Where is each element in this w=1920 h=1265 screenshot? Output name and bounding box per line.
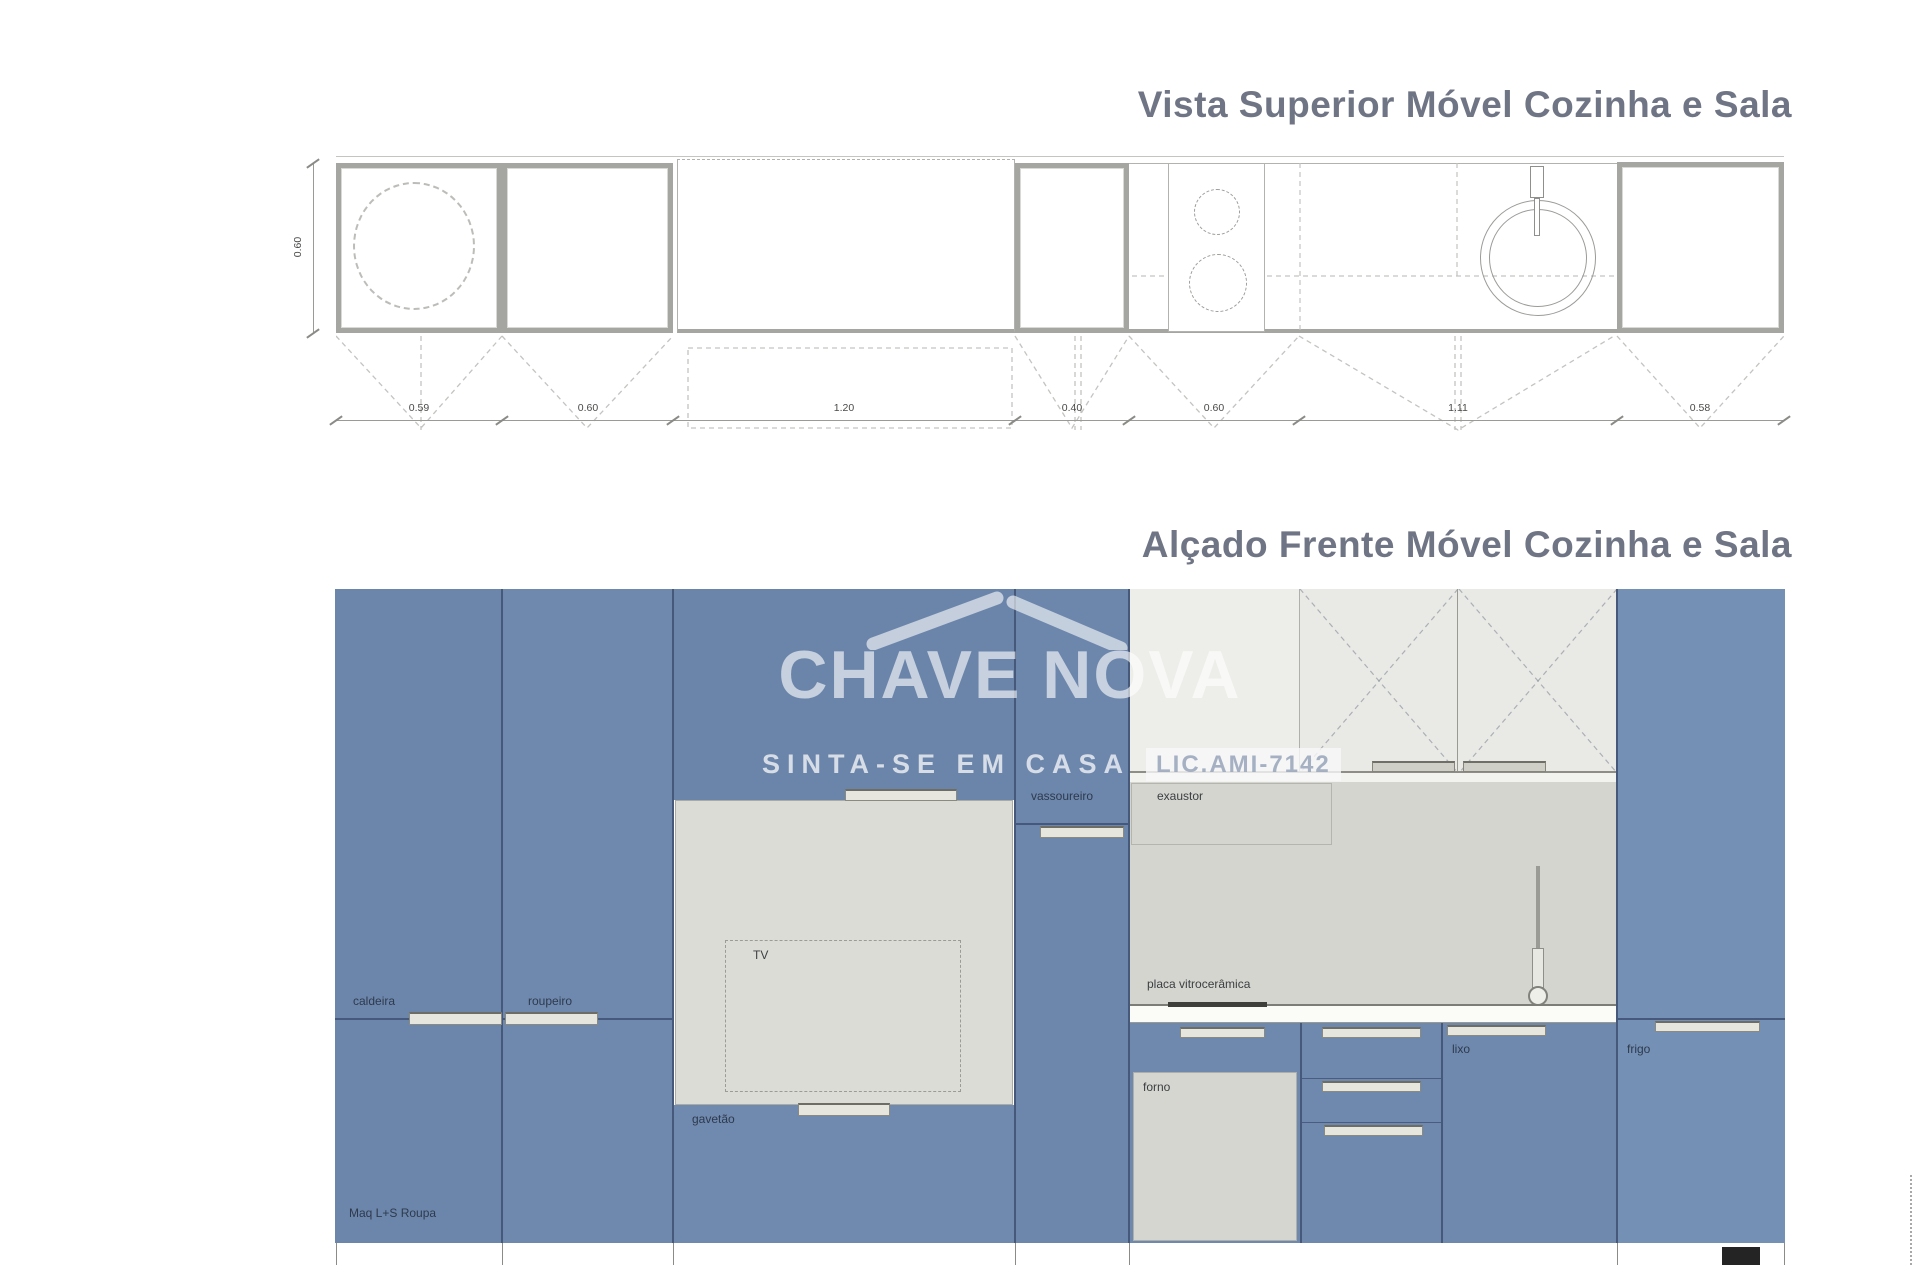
plinth-stub bbox=[1617, 1243, 1618, 1265]
caldeira-handle bbox=[409, 1012, 502, 1025]
plinth-stub bbox=[502, 1243, 503, 1265]
elevation-title: Alçado Frente Móvel Cozinha e Sala bbox=[992, 524, 1792, 566]
dim-label-6: 1.11 bbox=[1428, 402, 1488, 414]
drawer-handle-1 bbox=[1322, 1027, 1421, 1038]
vassoureiro-divider bbox=[1015, 823, 1129, 825]
label-gavetao: gavetão bbox=[692, 1112, 735, 1126]
plinth-stub bbox=[673, 1243, 674, 1265]
niche-bottom-handle bbox=[798, 1103, 890, 1116]
drawer-handle-3 bbox=[1324, 1125, 1423, 1136]
plan-depth-dim-line bbox=[313, 163, 314, 333]
plan-box-vassoureiro bbox=[1015, 163, 1129, 333]
tv-dashed-outline bbox=[725, 940, 961, 1092]
panel-divider-5 bbox=[1616, 589, 1618, 1243]
drawing-canvas: Vista Superior Móvel Cozinha e Sala 0.60 bbox=[0, 0, 1920, 1265]
plinth-stub bbox=[1015, 1243, 1016, 1265]
cooktop-strip bbox=[1168, 1002, 1267, 1007]
label-vassoureiro: vassoureiro bbox=[1031, 789, 1093, 803]
frigo-handle bbox=[1655, 1021, 1760, 1032]
upper-door-left-handle bbox=[1372, 761, 1455, 772]
label-frigo: frigo bbox=[1627, 1042, 1650, 1056]
plan-title: Vista Superior Móvel Cozinha e Sala bbox=[992, 84, 1792, 126]
niche-top-handle bbox=[845, 789, 957, 801]
plinth-stub bbox=[336, 1243, 337, 1265]
panel-divider-1 bbox=[501, 589, 503, 1243]
panel-divider-2 bbox=[672, 589, 674, 1243]
label-tv: TV bbox=[753, 948, 768, 962]
plan-hob-burner-small bbox=[1194, 189, 1240, 235]
lixo-door-handle bbox=[1447, 1025, 1546, 1036]
upper-divider-mid bbox=[1457, 589, 1458, 773]
plan-faucet-stem bbox=[1534, 198, 1540, 236]
vassoureiro-handle bbox=[1040, 826, 1124, 838]
plan-box-tv-unit bbox=[677, 159, 1015, 333]
label-maq-roupa: Maq L+S Roupa bbox=[349, 1206, 436, 1220]
base-divider-1 bbox=[1300, 1023, 1302, 1243]
faucet-body bbox=[1532, 948, 1544, 988]
label-placa: placa vitrocerâmica bbox=[1147, 977, 1250, 991]
drawer-divider-1 bbox=[1302, 1078, 1441, 1079]
watermark-license-badge: LIC.AMI-7142 bbox=[1146, 748, 1341, 781]
oven-front bbox=[1133, 1072, 1297, 1241]
plan-box-roupeiro bbox=[502, 163, 673, 333]
plan-dim-line bbox=[336, 420, 1784, 421]
cabinet-caldeira bbox=[335, 589, 502, 1243]
cabinet-frigo bbox=[1617, 589, 1785, 1243]
label-caldeira: caldeira bbox=[353, 994, 395, 1008]
plan-hob-burner-large bbox=[1189, 254, 1247, 312]
plan-box-caldeira bbox=[336, 163, 502, 333]
plan-faucet-head bbox=[1530, 166, 1544, 198]
oven-top-drawer-handle bbox=[1180, 1027, 1265, 1038]
drawer-divider-2 bbox=[1302, 1122, 1441, 1123]
plan-depth-label: 0.60 bbox=[292, 217, 304, 277]
plan-box-right-cabinet bbox=[1617, 162, 1784, 333]
watermark-row: SINTA-SE EM CASA LIC.AMI-7142 bbox=[762, 748, 1341, 781]
label-lixo: lixo bbox=[1452, 1042, 1470, 1056]
plan-wall-line bbox=[336, 156, 1784, 157]
dim-label-1: 0.59 bbox=[389, 402, 449, 414]
upper-door-x-marks bbox=[1300, 589, 1617, 773]
dim-label-3: 1.20 bbox=[814, 402, 874, 414]
label-roupeiro: roupeiro bbox=[528, 994, 572, 1008]
base-divider-2 bbox=[1441, 1023, 1443, 1243]
dim-label-5: 0.60 bbox=[1184, 402, 1244, 414]
plinth-stub bbox=[1129, 1243, 1130, 1265]
label-exaustor: exaustor bbox=[1157, 789, 1203, 803]
frigo-divider bbox=[1617, 1018, 1785, 1020]
bottom-black-marker bbox=[1722, 1247, 1760, 1265]
dim-label-4: 0.40 bbox=[1042, 402, 1102, 414]
right-dotted-edge bbox=[1910, 1175, 1912, 1265]
label-forno: forno bbox=[1143, 1080, 1170, 1094]
watermark-tagline: SINTA-SE EM CASA bbox=[762, 749, 1130, 780]
watermark-brand: CHAVE NOVA bbox=[690, 636, 1330, 714]
dim-label-2: 0.60 bbox=[558, 402, 618, 414]
plinth-stub bbox=[1784, 1243, 1785, 1265]
drawer-handle-2 bbox=[1322, 1081, 1421, 1092]
upper-door-right-handle bbox=[1463, 761, 1546, 772]
plan-boiler-circle bbox=[353, 182, 475, 310]
cabinet-roupeiro bbox=[502, 589, 673, 1243]
faucet-base bbox=[1528, 986, 1548, 1006]
dim-label-7: 0.58 bbox=[1670, 402, 1730, 414]
roupeiro-handle bbox=[505, 1012, 598, 1025]
